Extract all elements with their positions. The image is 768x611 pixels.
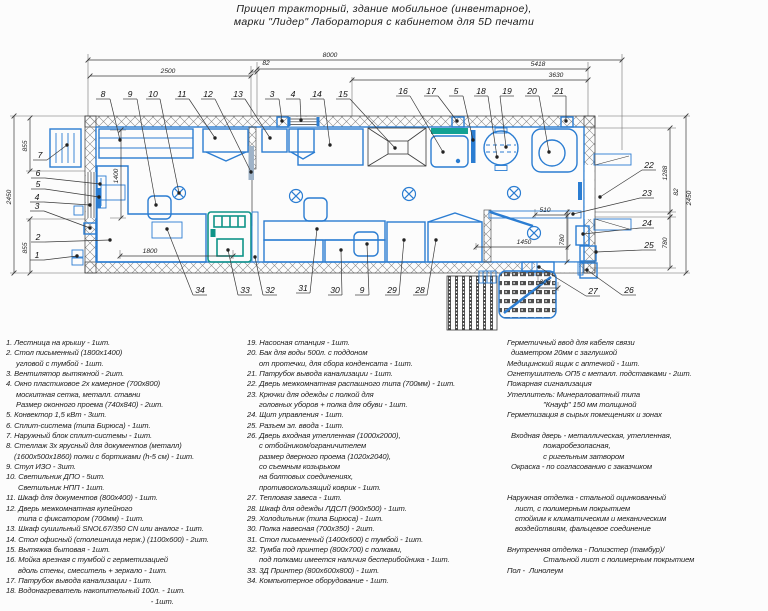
dimension-label: 510 xyxy=(539,207,550,214)
callout-dot xyxy=(98,182,101,185)
legend-line: Размер оконного проема (740х840) - 2шт. xyxy=(6,400,246,410)
lamp-icon xyxy=(508,187,521,200)
legend-line: 3. Вентилятор вытяжной - 2шт. xyxy=(6,369,246,379)
callout-dot xyxy=(547,150,550,153)
legend-line: Герметизация в сырых помещениях и зонах xyxy=(507,410,767,420)
legend-line: Наружная отделка - стальной оцинкованный xyxy=(507,493,767,503)
dimension-label: 2450 xyxy=(686,190,693,206)
dimension-label: 2500 xyxy=(160,68,176,75)
callout-number: 33 xyxy=(240,285,250,295)
callout-dot xyxy=(598,195,601,198)
printer-3d xyxy=(208,212,251,262)
dimension-label: 3630 xyxy=(549,72,564,79)
legend-line: (1600х500х1860) полки с бортиками (h-5 с… xyxy=(6,452,246,462)
document-cabinet xyxy=(203,129,248,161)
callout-number: 2 xyxy=(35,232,41,242)
lamp-icon xyxy=(290,190,303,203)
legend-line: Входная дверь - металлическая, утепленна… xyxy=(507,431,767,441)
callout-number: 23 xyxy=(641,188,652,198)
floor-plan: 8000250082541836308552450855140018005101… xyxy=(0,0,768,336)
callout-dot xyxy=(594,250,597,253)
legend-line: 24. Щит управления - 1шт. xyxy=(247,410,505,420)
callout-dot xyxy=(213,136,216,139)
callout-number: 22 xyxy=(643,160,654,170)
legend-line: 15. Вытяжка бытовая - 1шт. xyxy=(6,545,246,555)
legend-line: Пожарная сигнализация xyxy=(507,379,767,389)
legend-line: 34. Компьютерное оборудование - 1шт. xyxy=(247,576,505,586)
legend-line: "Кнауф" 150 мм толщиной xyxy=(507,400,767,410)
legend-line: на болтовых соединениях, xyxy=(247,472,505,482)
water-heater xyxy=(484,128,518,171)
dimension-label: 5418 xyxy=(531,61,546,68)
dimension-label: 780 xyxy=(559,234,566,245)
callout-dot xyxy=(280,119,283,122)
legend-line: 12. Дверь межкомнатная купейного xyxy=(6,504,246,514)
legend-line: угловой с тумбой - 1шт. xyxy=(6,359,246,369)
dimension-label: 82 xyxy=(262,60,270,67)
legend-line: 6. Сплит-система (типа Бирюса) - 1шт. xyxy=(6,421,246,431)
callout-number: 1 xyxy=(35,250,40,260)
callout-dot xyxy=(537,265,540,268)
callout-dot xyxy=(495,155,498,158)
callout-dot xyxy=(571,212,574,215)
legend-line: 32. Тумба под принтер (800х700) с полкам… xyxy=(247,545,505,555)
legend-line: 26. Дверь входная утепленная (1000х2000)… xyxy=(247,431,505,441)
dimension-label: 855 xyxy=(22,242,29,253)
legend-line: 30. Полка навесная (700х350) - 2шт. xyxy=(247,524,505,534)
dimension-label: 855 xyxy=(22,140,29,151)
legend-line: 17. Патрубок вывода канализации - 1шт. xyxy=(6,576,246,586)
callout-leader xyxy=(341,250,342,295)
callout-dot xyxy=(88,203,91,206)
legend-line: 11. Шкаф для документов (800х400) - 1шт. xyxy=(6,493,246,503)
legend-line: 29. Холодильник (типа Бирюса) - 1шт. xyxy=(247,514,505,524)
legend-line: 25. Разъем эл. ввода - 1шт. xyxy=(247,421,505,431)
callout-number: 25 xyxy=(643,240,654,250)
callout-dot xyxy=(315,227,318,230)
callout-leader xyxy=(137,99,156,205)
legend-line: пожаробезопасная, xyxy=(507,441,767,451)
chair-2 xyxy=(304,198,327,221)
drawing-title-line1: Прицеп тракторный, здание мобильное (инв… xyxy=(0,3,768,16)
legend-line xyxy=(507,535,767,545)
legend-line xyxy=(507,483,767,493)
callout-number: 3 xyxy=(35,201,40,211)
callout-number: 11 xyxy=(178,89,187,99)
callout-number: 24 xyxy=(641,218,652,228)
legend-line: Внутренняя отделка - Полиэстер (тамбур)/ xyxy=(507,545,767,555)
callout-number: 3 xyxy=(270,89,275,99)
callout-number: 12 xyxy=(203,89,213,99)
callout-dot xyxy=(393,146,396,149)
legend-line: Светильник НПП - 1шт. xyxy=(6,483,246,493)
document-rack xyxy=(99,129,193,158)
callout-number: 19 xyxy=(502,86,512,96)
callout-dot xyxy=(268,136,271,139)
sink-unit xyxy=(431,128,468,167)
callout-dot xyxy=(441,150,444,153)
callout-dot xyxy=(564,119,567,122)
callout-dot xyxy=(108,238,111,241)
drying-cabinet xyxy=(262,129,315,159)
wardrobe xyxy=(428,213,482,262)
legend-line: диаметром 20мм с заглушкой xyxy=(507,348,767,358)
callout-leader xyxy=(600,170,642,197)
dimension-label: 1800 xyxy=(143,248,158,255)
callout-leader xyxy=(215,99,251,172)
legend-line: воздействиям, фальцевое соединение xyxy=(507,524,767,534)
callout-number: 21 xyxy=(553,86,564,96)
legend-line: 20. Бак для воды 500л. с поддоном xyxy=(247,348,505,358)
legend-line: 22. Дверь межкомнатная распашного типа (… xyxy=(247,379,505,389)
callout-dot xyxy=(434,238,437,241)
legend-line: 13. Шкаф сушильный SNOL67/350 CN или ана… xyxy=(6,524,246,534)
legend-line: с отбойником/ограничителем xyxy=(247,441,505,451)
callout-number: 20 xyxy=(526,86,537,96)
callout-number: 18 xyxy=(476,86,486,96)
legend-line: 21. Патрубок вывода канализации - 1шт. xyxy=(247,369,505,379)
window-top xyxy=(288,117,320,127)
legend-line: под полками имеется наличия бесперибойни… xyxy=(247,555,505,565)
legend-line: 33. 3Д Принтер (800х600х800) - 1шт. xyxy=(247,566,505,576)
callout-number: 6 xyxy=(36,168,41,178)
lamp-icon xyxy=(528,227,541,240)
legend-line: 8. Стеллаж 3х ярусный для документов (ме… xyxy=(6,441,246,451)
legend-line: 31. Стол письменный (1400х600) с тумбой … xyxy=(247,535,505,545)
callout-number: 14 xyxy=(312,89,322,99)
drawing-title: Прицеп тракторный, здание мобильное (инв… xyxy=(0,3,768,29)
dimension-label: 780 xyxy=(662,237,669,248)
swing-door-leaf xyxy=(490,212,533,226)
callout-leader xyxy=(160,99,179,193)
callout-number: 17 xyxy=(426,86,437,96)
legend-line: головных уборов + полка для обуви - 1шт. xyxy=(247,400,505,410)
legend-line: Огнетушитель ОП5 с металл. подставками -… xyxy=(507,369,767,379)
callout-number: 30 xyxy=(330,285,340,295)
callout-number: 7 xyxy=(38,150,44,160)
computer-equipment xyxy=(101,185,182,238)
split-outdoor-unit xyxy=(50,129,81,167)
legend-line: 14. Стол офисный (столешница нерж.) (110… xyxy=(6,535,246,545)
callout-number: 29 xyxy=(386,285,397,295)
chair-1 xyxy=(148,196,171,219)
callout-number: 26 xyxy=(623,285,634,295)
callout-leader xyxy=(573,198,640,214)
callout-dot xyxy=(177,191,180,194)
callout-dot xyxy=(165,227,168,230)
callout-number: 27 xyxy=(587,286,599,296)
callout-number: 9 xyxy=(360,285,365,295)
legend-line: 1. Лестница на крышу - 1шт. xyxy=(6,338,246,348)
callout-number: 31 xyxy=(298,283,308,293)
legend-line: типа с фиксатором (700мм) - 1шт. xyxy=(6,514,246,524)
callout-dot xyxy=(65,143,68,146)
callout-leader xyxy=(310,229,317,293)
fridge xyxy=(387,222,425,262)
callout-number: 34 xyxy=(195,285,205,295)
legend-line: 5. Конвектор 1,5 кВт - 3шт. xyxy=(6,410,246,420)
legend-line: 9. Стул ИЗО - 3шт. xyxy=(6,462,246,472)
dimension-label: 82 xyxy=(673,188,680,196)
legend-line: 23. Крючки для одежды с полкой для xyxy=(247,390,505,400)
legend-line: 19. Насосная станция - 1шт. xyxy=(247,338,505,348)
callout-dot xyxy=(328,143,331,146)
dimension-label: 8000 xyxy=(323,52,338,59)
dimension-label: 1400 xyxy=(113,168,120,183)
drawing-title-line2: марки "Лидер" Лаборатория с кабинетом дл… xyxy=(0,16,768,29)
callout-dot xyxy=(118,138,121,141)
legend-line: 16. Мойка врезная с тумбой с герметизаци… xyxy=(6,555,246,565)
legend-line: Стальной лист с полимерным покрытием xyxy=(507,555,767,565)
item-list-left: 1. Лестница на крышу - 1шт.2. Стол письм… xyxy=(6,338,246,607)
legend-line: лист, с полимерным покрытием xyxy=(507,504,767,514)
spec-notes: Герметичный ввод для кабеля связи диамет… xyxy=(507,338,767,576)
legend-line: Медицинский ящик с аптечкой - 1шт. xyxy=(507,359,767,369)
legend-line: от протечки, для сбора конденсата - 1шт. xyxy=(247,359,505,369)
legend-line: Герметичный ввод для кабеля связи xyxy=(507,338,767,348)
office-desk xyxy=(298,129,363,165)
legend-line xyxy=(507,472,767,482)
callout-number: 5 xyxy=(36,179,41,189)
legend-line: 2. Стол письменный (1800х1400) xyxy=(6,348,246,358)
item-list-mid: 19. Насосная станция - 1шт.20. Бак для в… xyxy=(247,338,505,586)
printer-stand xyxy=(252,212,258,262)
legend-line: 4. Окно пластиковое 2х камерное (700х800… xyxy=(6,379,246,389)
water-tank xyxy=(532,129,577,172)
legend-line: 28. Шкаф для одежды ЛДСП (900х500) - 1шт… xyxy=(247,504,505,514)
callout-dot xyxy=(585,268,588,271)
legend-line: - 1шт. xyxy=(6,597,246,607)
dimension-label: 2450 xyxy=(6,189,13,205)
callout-dot xyxy=(504,145,507,148)
callout-dot xyxy=(299,118,302,121)
callout-number: 28 xyxy=(414,285,425,295)
callout-dot xyxy=(249,170,252,173)
callout-leader xyxy=(44,202,90,205)
legend-line: москитная сетка, металл. ставни xyxy=(6,390,246,400)
callout-dot xyxy=(226,248,229,251)
legend-line: 18. Водонагреватель накопительный 100л. … xyxy=(6,586,246,596)
callout-dot xyxy=(97,195,100,198)
callout-number: 9 xyxy=(128,89,133,99)
legend-line: Пол - Линолеум xyxy=(507,566,767,576)
legend-line: размер дверного проема (1020х2040), xyxy=(247,452,505,462)
callout-number: 4 xyxy=(291,89,296,99)
legend-line: противоскользящий коврик - 1шт. xyxy=(247,483,505,493)
convector-right xyxy=(578,182,582,200)
callout-number: 5 xyxy=(454,86,459,96)
callout-leader xyxy=(596,250,642,252)
callout-dot xyxy=(88,226,91,229)
callout-leader xyxy=(45,240,110,242)
callout-dot xyxy=(581,232,584,235)
callout-dot xyxy=(365,242,368,245)
callout-number: 13 xyxy=(233,89,243,99)
legend-line: 27. Тепловая завеса - 1шт. xyxy=(247,493,505,503)
legend-line: Утеплитель: Минераловатный типа xyxy=(507,390,767,400)
callout-number: 16 xyxy=(398,86,408,96)
callout-number: 32 xyxy=(265,285,275,295)
legend-line: с ригельным затвором xyxy=(507,452,767,462)
dimension-label: 1450 xyxy=(517,239,532,246)
callout-dot xyxy=(402,238,405,241)
dimension-label: 300 xyxy=(539,279,550,286)
legend-line xyxy=(507,421,767,431)
partitions xyxy=(249,127,534,262)
dimension-label: 1288 xyxy=(662,165,669,180)
drawing-sheet: Прицеп тракторный, здание мобильное (инв… xyxy=(0,0,768,611)
callout-number: 15 xyxy=(338,89,348,99)
legend-line: Окраска - по согласованию с заказчиком xyxy=(507,462,767,472)
lamp-icon xyxy=(403,188,416,201)
callout-dot xyxy=(154,203,157,206)
callout-dot xyxy=(75,254,78,257)
callout-dot xyxy=(471,138,474,141)
kitchen-hood xyxy=(368,128,426,166)
callout-dot xyxy=(455,119,458,122)
legend-line: вдоль стены, смеситель + зеркало - 1шт. xyxy=(6,566,246,576)
sliding-door-leaf xyxy=(249,146,255,180)
callout-dot xyxy=(339,248,342,251)
callout-number: 8 xyxy=(101,89,106,99)
legend-line: стойким к климатическим и механическим xyxy=(507,514,767,524)
furniture xyxy=(50,117,596,272)
callout-number: 10 xyxy=(148,89,158,99)
legend-line: со съемным козырьком xyxy=(247,462,505,472)
callout-dot xyxy=(253,255,256,258)
legend-line: 7. Наружный блок сплит-системы - 1шт. xyxy=(6,431,246,441)
legend-line: 10. Светильник ДПО - 5шт. xyxy=(6,472,246,482)
